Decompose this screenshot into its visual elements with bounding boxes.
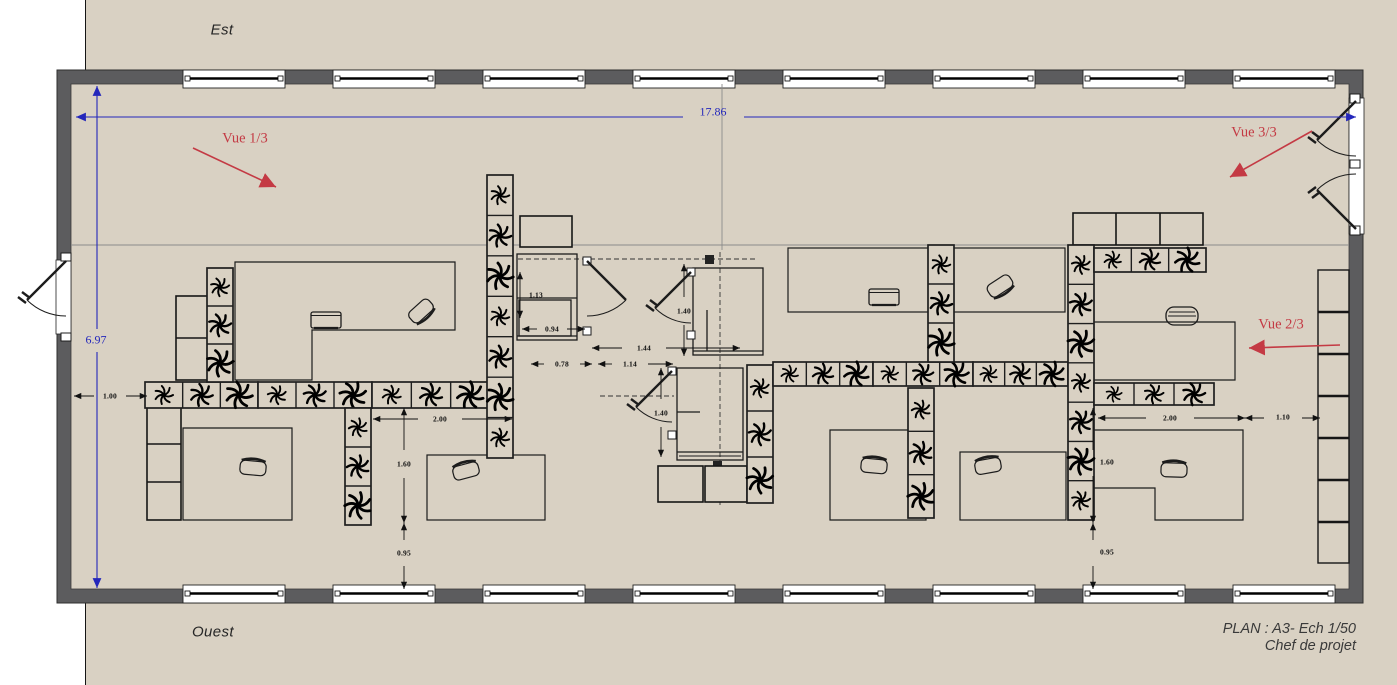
dimension-label: 1.60 [1100, 458, 1114, 467]
dimension-label: 2.00 [1163, 414, 1177, 423]
dimension-label: 1.00 [103, 392, 117, 401]
dimension-label: 1.10 [1276, 413, 1290, 422]
view-label: Vue 3/3 [1231, 125, 1276, 142]
dimension-label: 0.94 [545, 325, 559, 334]
dimension-label: 1.60 [397, 460, 411, 469]
overall-height-dimension: 6.97 [86, 333, 107, 348]
dimension-label: 0.95 [1100, 548, 1114, 557]
dimension-label: 1.40 [654, 409, 668, 418]
orientation-label-ouest: Ouest [192, 624, 234, 641]
dimension-label: 1.13 [529, 291, 543, 300]
dimension-label: 0.78 [555, 360, 569, 369]
author-role-note: Chef de projet [1223, 638, 1356, 655]
view-label: Vue 1/3 [222, 131, 267, 148]
orientation-label-est: Est [211, 22, 234, 39]
view-label: Vue 2/3 [1258, 317, 1303, 334]
dimension-label: 1.40 [677, 307, 691, 316]
dimension-label: 0.95 [397, 549, 411, 558]
overall-width-dimension: 17.86 [700, 105, 727, 120]
title-block: PLAN : A3- Ech 1/50 Chef de projet [1223, 621, 1356, 654]
dimension-label: 2.00 [433, 415, 447, 424]
plan-scale-note: PLAN : A3- Ech 1/50 [1223, 621, 1356, 638]
floor-plan-canvas: Est Ouest 17.86 6.97 PLAN : A3- Ech 1/50… [0, 0, 1397, 685]
annotation-layer: Est Ouest 17.86 6.97 PLAN : A3- Ech 1/50… [0, 0, 1397, 685]
dimension-label: 1.14 [623, 360, 637, 369]
dimension-label: 1.44 [637, 344, 651, 353]
